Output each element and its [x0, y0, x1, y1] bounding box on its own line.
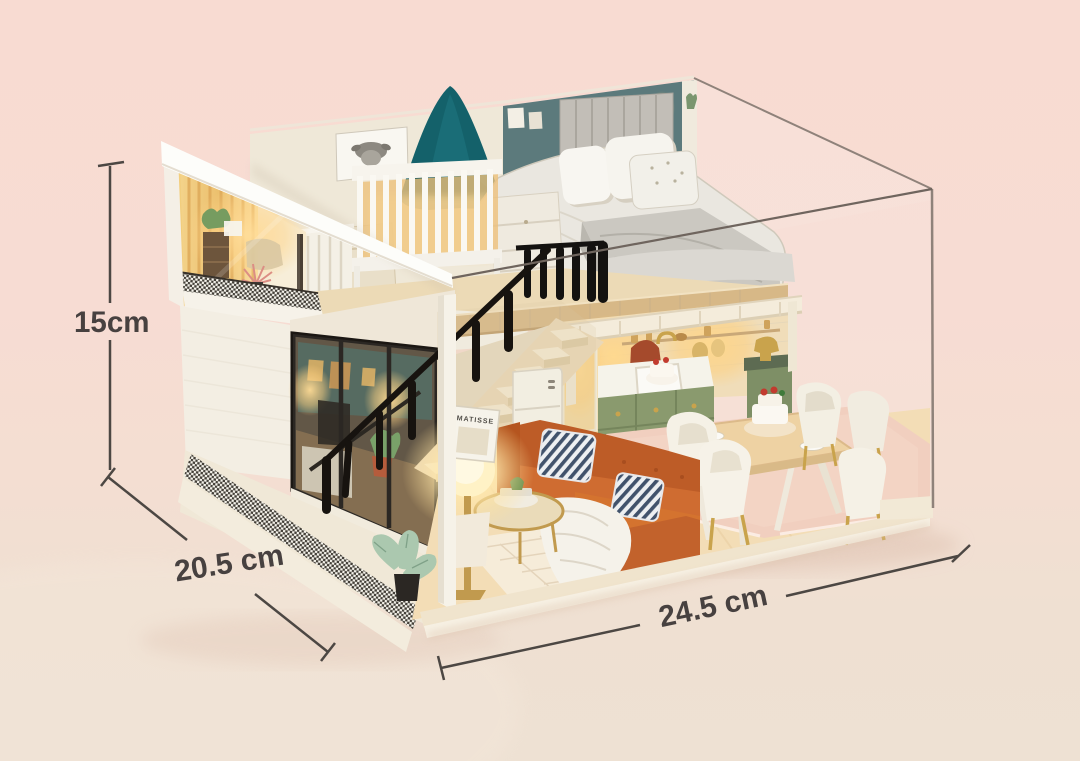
- svg-text:15cm: 15cm: [74, 306, 149, 339]
